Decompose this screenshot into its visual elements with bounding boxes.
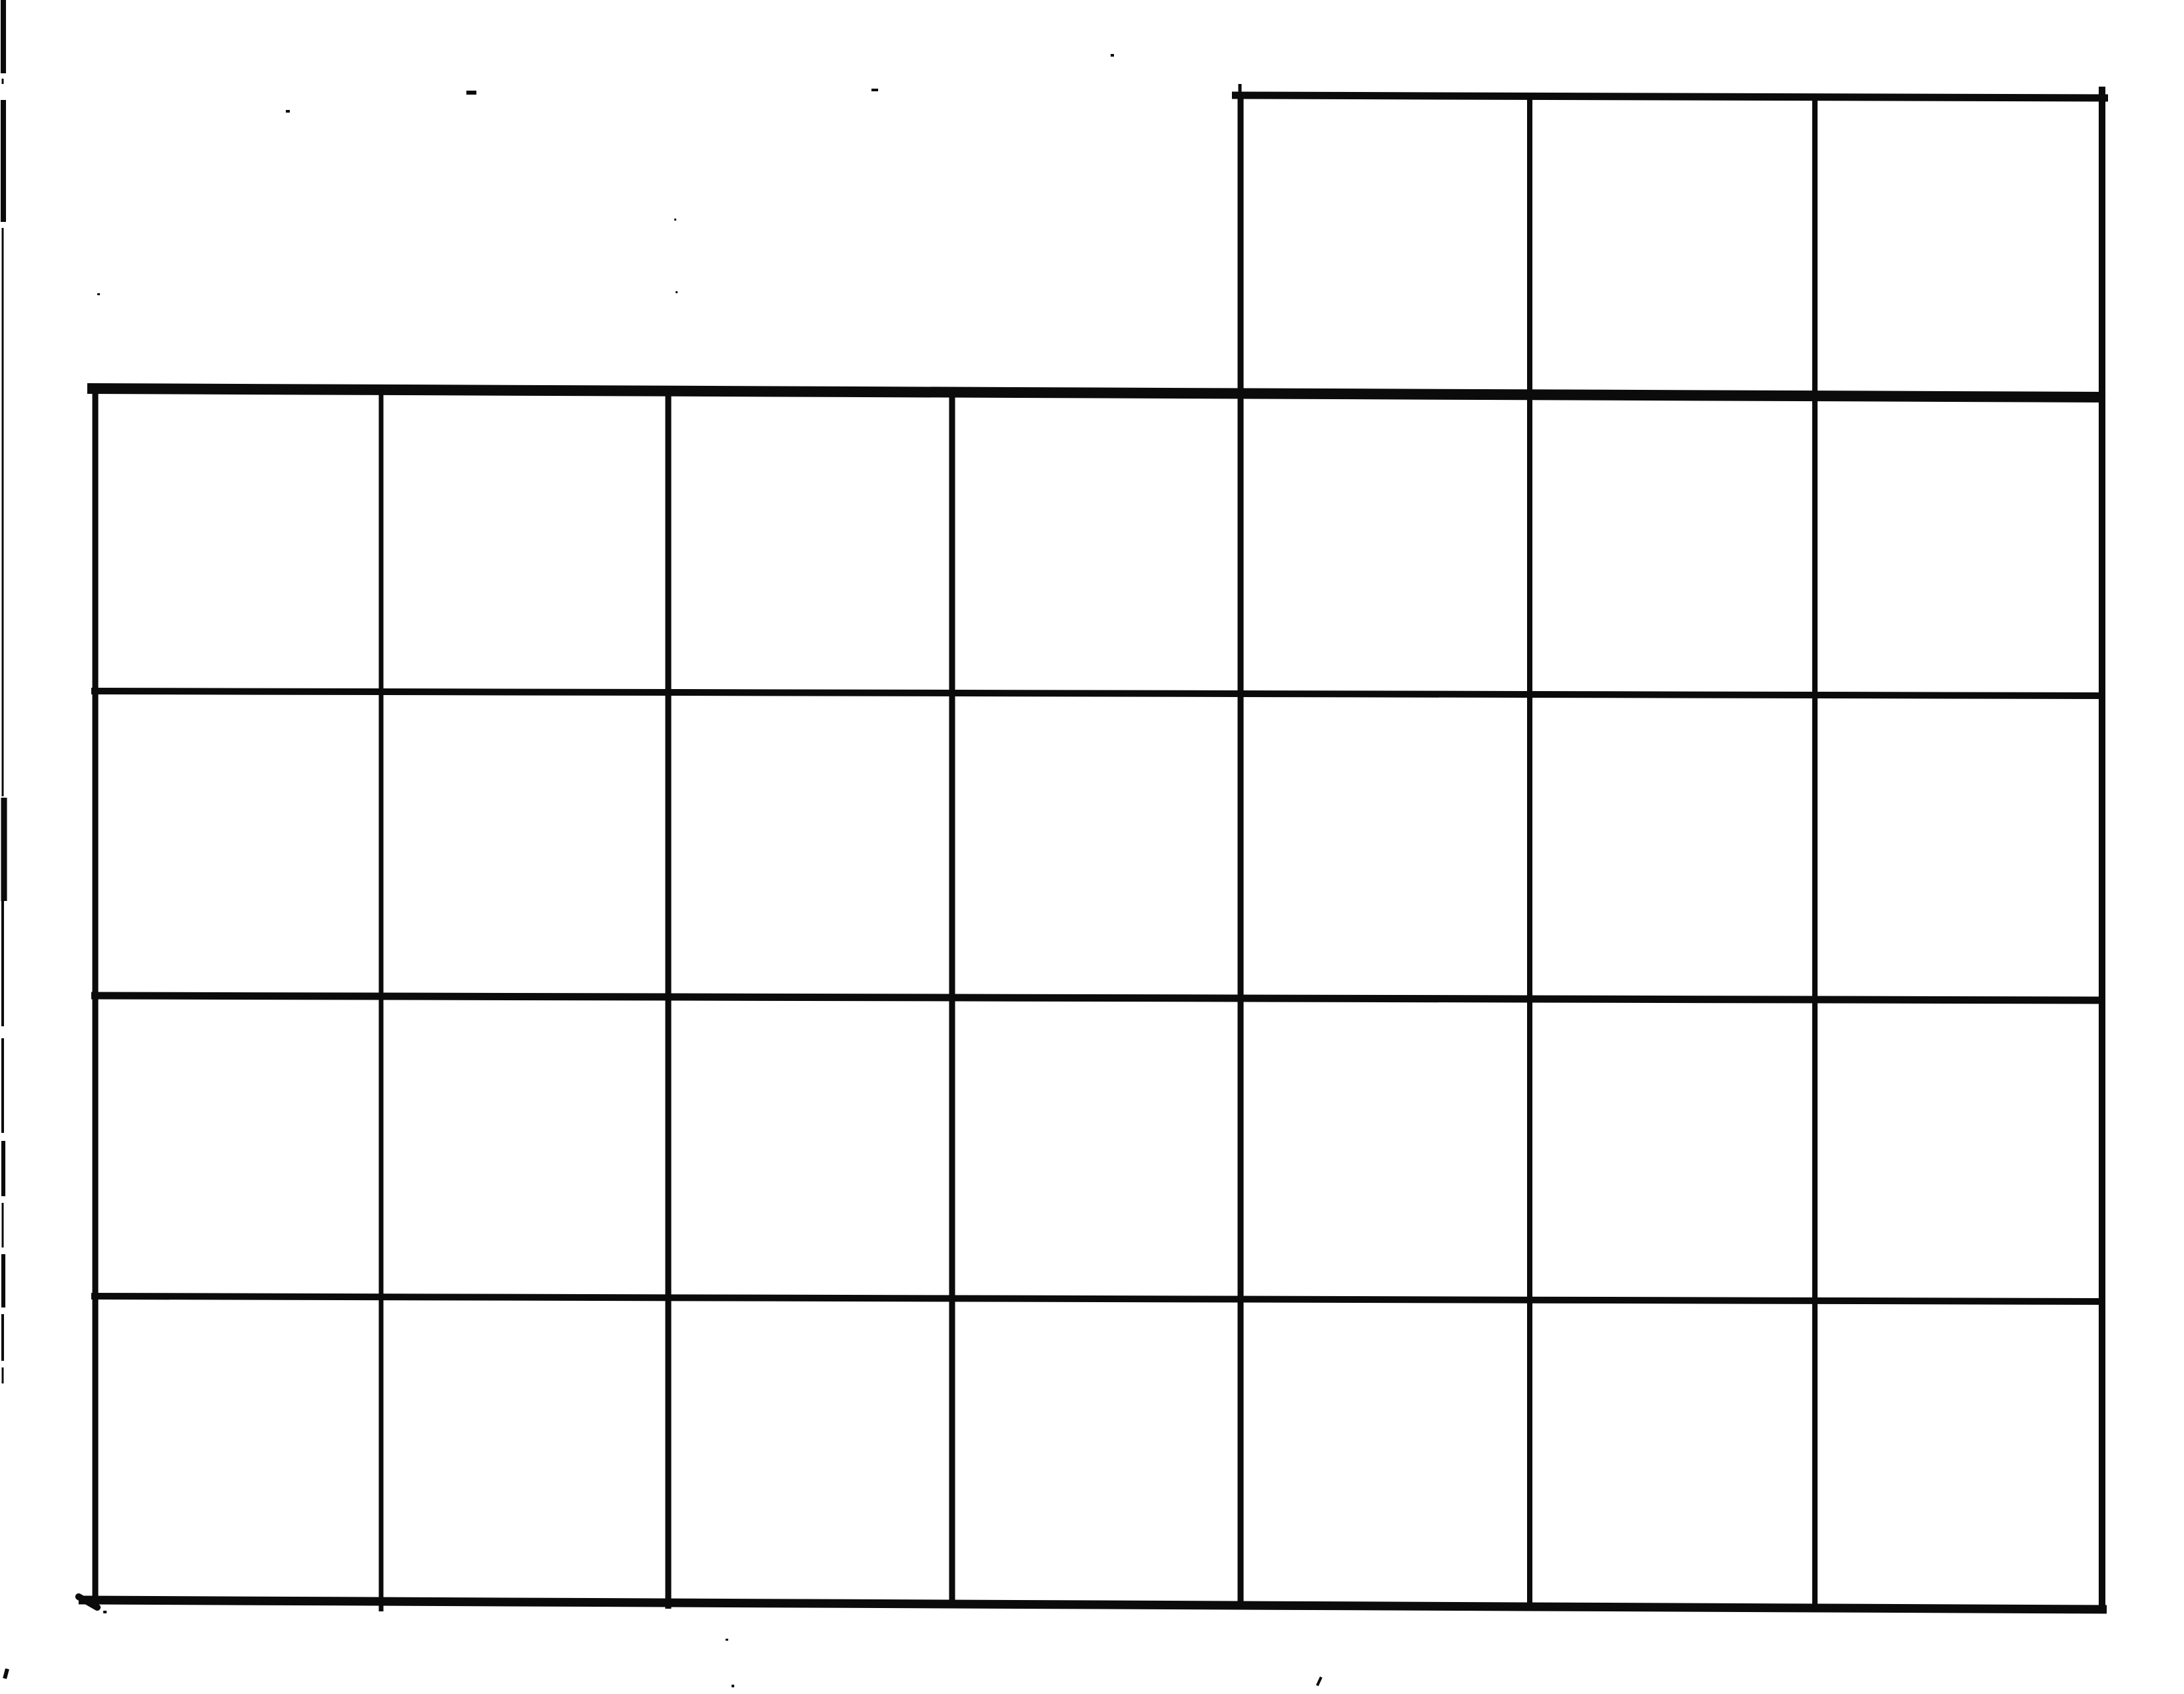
dust-speck: [103, 1611, 107, 1613]
dust-speck: [732, 1685, 734, 1687]
dust-speck: [1111, 54, 1114, 57]
dust-speck: [871, 89, 878, 91]
dust-speck: [97, 293, 100, 295]
grid-hline-extension-top-border: [1232, 95, 2108, 98]
dust-speck: [676, 291, 678, 293]
scan-surface: [0, 0, 2184, 1694]
paper-background: [0, 0, 2184, 1694]
dust-speck: [466, 91, 476, 95]
hand-drawn-grid: [0, 0, 2184, 1694]
grid-hline-row-divider-2: [91, 996, 2104, 1000]
scanned-worksheet-page: { "meta": { "description": "Scanned hand…: [0, 0, 2184, 1694]
dust-speck: [674, 219, 676, 221]
grid-hline-row-divider-1: [91, 691, 2104, 696]
dust-speck: [286, 110, 290, 113]
dust-speck: [726, 1639, 728, 1641]
